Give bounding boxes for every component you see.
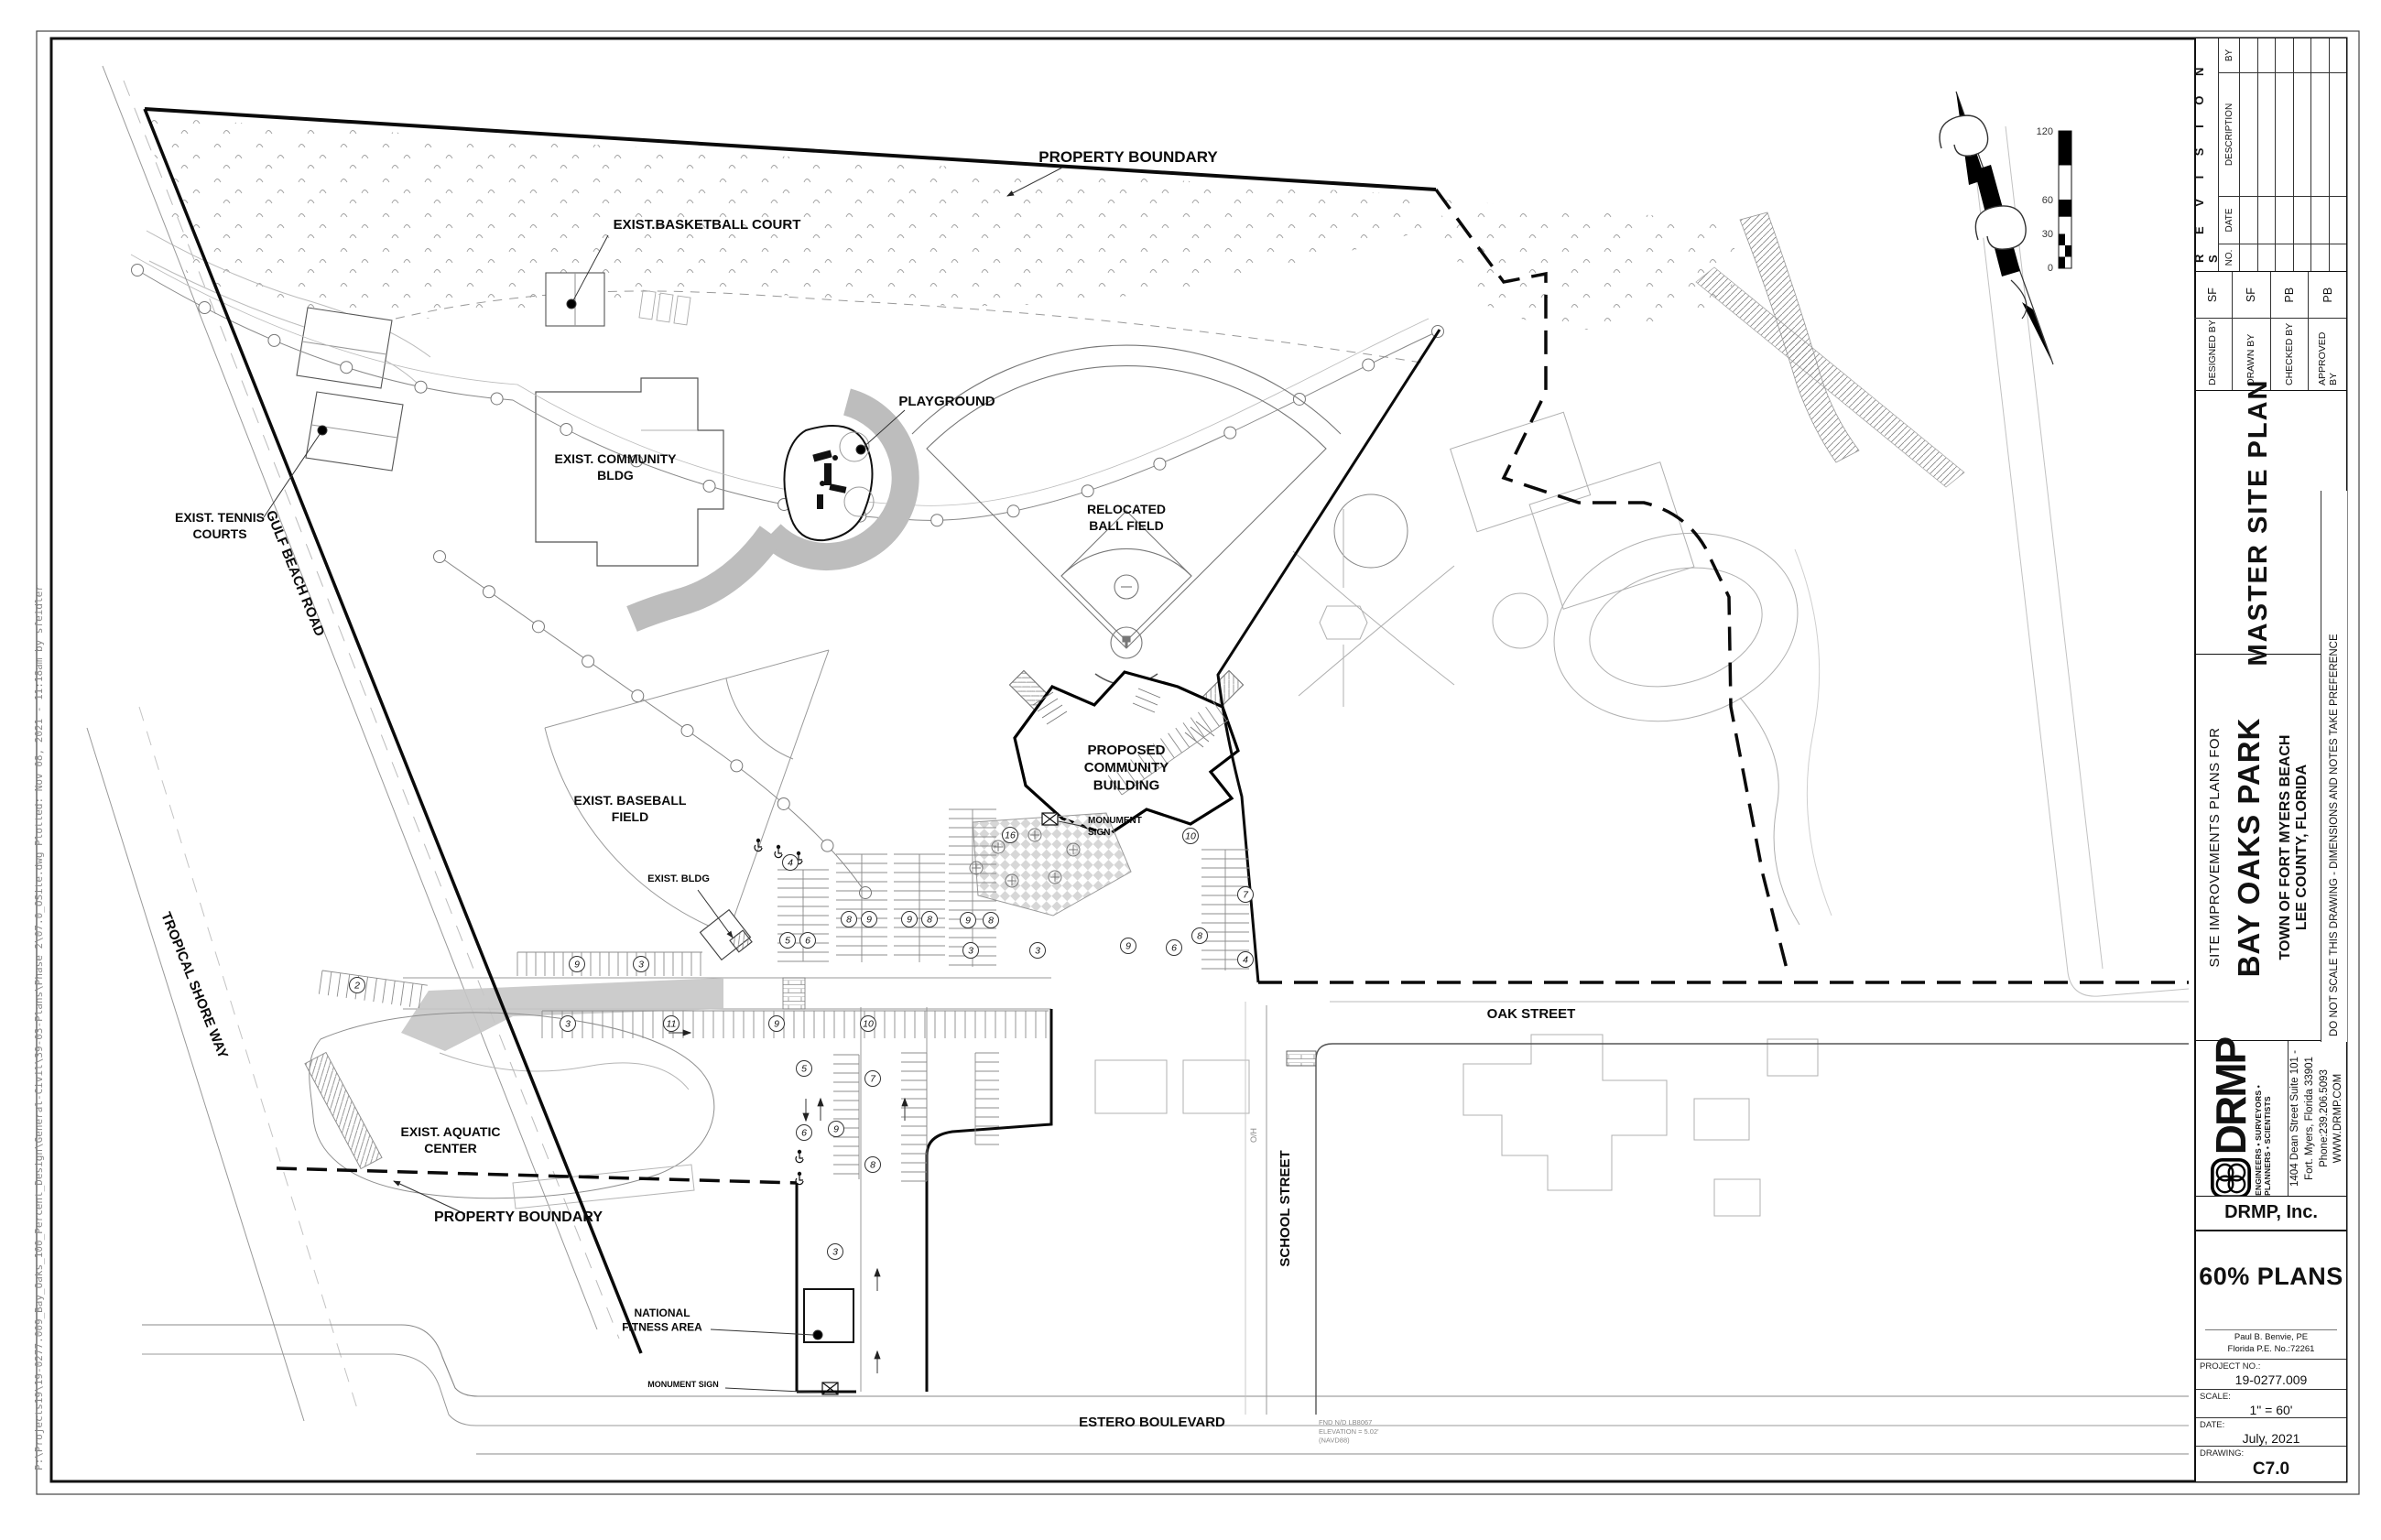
parking-count-badge: 8 [842, 912, 857, 927]
svg-text:3: 3 [565, 1019, 571, 1030]
parking-count-badge: 4 [783, 855, 799, 871]
firm-logo-section: DRMP ENGINEERS • SURVEYORS • PLANNERS • … [2194, 1040, 2346, 1196]
engineer-signature: Paul B. Benvie, PE Florida P.E. No.:7226… [2205, 1329, 2337, 1359]
parking-count-badge: 10 [861, 1016, 876, 1032]
svg-text:8: 8 [1197, 931, 1202, 942]
plan-label-basketball-court: EXIST.BASKETBALL COURT [614, 217, 801, 233]
plan-label-exist-bldg: EXIST. BLDG [647, 873, 710, 884]
no-scale-disclaimer: DO NOT SCALE THIS DRAWING - DIMENSIONS A… [2321, 491, 2347, 1042]
svg-text:4: 4 [788, 858, 793, 869]
parking-count-badge: 9 [769, 1016, 785, 1032]
plan-label-exist-baseball-field: EXIST. BASEBALLFIELD [574, 793, 687, 824]
parking-count-badge: 8 [865, 1157, 881, 1173]
parking-count-badge: 5 [797, 1061, 812, 1077]
exist-baseball-field-shape [545, 650, 829, 934]
svg-text:8: 8 [988, 916, 994, 927]
plan-label-tropical-shore-way: TROPICAL SHORE WAY [158, 910, 231, 1061]
svg-text:4: 4 [1243, 955, 1248, 966]
revisions-col-description: DESCRIPTION [2219, 72, 2239, 196]
revisions-col-by: BY [2219, 38, 2239, 72]
parking-count-badge: 4 [1238, 952, 1254, 968]
plan-label-relocated-ball-field: RELOCATEDBALL FIELD [1087, 502, 1166, 533]
plot-stamp: P:\Projects19\19-0277.009_Bay_Oaks_100_P… [33, 42, 49, 1470]
svg-text:5: 5 [801, 1064, 807, 1075]
scale-bar-tick: 30 [2042, 229, 2053, 240]
project-name: BAY OAKS PARK [2232, 718, 2267, 978]
revisions-col-no: NO. [2219, 244, 2239, 271]
svg-text:6: 6 [801, 1128, 807, 1139]
parking-count-badge: 7 [865, 1071, 881, 1087]
parking-count-badge: 16 [1003, 828, 1018, 843]
plan-label-property-boundary-bottom: PROPERTY BOUNDARY [434, 1209, 603, 1225]
parking-count-badge: 5 [780, 933, 796, 949]
sheet-title: MASTER SITE PLAN [2244, 379, 2274, 667]
status-label: 60% PLANS [2199, 1263, 2343, 1291]
site-plan-canvas: 12060300 PROPERTY BOUNDARYEXIST.BASKETBA… [0, 0, 2381, 1540]
firm-tagline: ENGINEERS • SURVEYORS • PLANNERS • SCIEN… [2254, 1041, 2272, 1196]
revisions-col-date: DATE [2219, 196, 2239, 244]
parking-count-badge: 3 [560, 1016, 576, 1032]
plan-label-playground: PLAYGROUND [898, 394, 995, 409]
project-county: LEE COUNTY, FLORIDA [2294, 765, 2310, 930]
parking-count-badge: 8 [922, 912, 938, 927]
svg-text:9: 9 [965, 916, 971, 927]
basketball-court-shape [546, 273, 604, 326]
parking-count-badge: 7 [1238, 887, 1254, 903]
firm-name: DRMP, Inc. [2196, 1196, 2346, 1231]
parking-count-badge: 11 [664, 1016, 680, 1032]
svg-text:6: 6 [1171, 943, 1177, 954]
parking-count-badge: 10 [1183, 829, 1199, 844]
parking-count-badge: 6 [1167, 940, 1182, 956]
svg-text:3: 3 [638, 960, 644, 971]
parking-count-badge: 3 [1030, 943, 1046, 959]
revisions-section: R E V I S I O N S NO.DATEDESCRIPTIONBY [2194, 38, 2346, 271]
crosswalk-school [1287, 1051, 1316, 1066]
project-town: TOWN OF FORT MYERS BEACH [2278, 735, 2294, 960]
exist-bldg-shape [701, 910, 752, 960]
fitness-area-shape [804, 1289, 853, 1342]
status-section: 60% PLANS Paul B. Benvie, PE Florida P.E… [2196, 1231, 2346, 1360]
plan-label-national-fitness-area: NATIONALFITNESS AREA [622, 1307, 702, 1333]
staff-row: DESIGNED BYSF [2194, 272, 2233, 390]
plan-label-estero-boulevard: ESTERO BOULEVARD [1079, 1415, 1225, 1430]
crosswalk-brick [783, 978, 805, 1009]
engineer-name: Paul B. Benvie, PE [2205, 1332, 2337, 1343]
engineer-license: Florida P.E. No.:72261 [2205, 1344, 2337, 1355]
title-block-rotated: DRMP ENGINEERS • SURVEYORS • PLANNERS • … [2194, 38, 2346, 1196]
field-scale: SCALE: 1" = 60' [2196, 1390, 2346, 1418]
svg-text:3: 3 [1035, 946, 1040, 957]
svg-text:3: 3 [832, 1247, 838, 1258]
svg-text:2: 2 [353, 981, 360, 992]
plan-label-property-boundary-top: PROPERTY BOUNDARY [1038, 148, 1218, 166]
plan-smalltext-survey-note: FND N/D LB8067ELEVATION = 5.02'(NAVD88) [1319, 1418, 1379, 1445]
firm-address-line2: Phone:239.206.5093 WWW.DRMP.COM [2318, 1041, 2346, 1196]
svg-text:3: 3 [968, 946, 973, 957]
scale-bar-tick: 120 [2037, 126, 2053, 137]
scale-bar: 12060300 [2037, 126, 2071, 274]
staff-row: APPROVED BYPB [2309, 272, 2346, 390]
parking-count-badge: 8 [984, 913, 999, 928]
svg-text:10: 10 [863, 1019, 874, 1030]
parking-count-badge: 6 [800, 933, 816, 949]
scale-bar-tick: 0 [2048, 263, 2053, 274]
svg-text:10: 10 [1185, 831, 1196, 842]
tennis-courts-shape [297, 308, 403, 471]
title-block-bottom: DRMP, Inc. 60% PLANS Paul B. Benvie, PE … [2194, 1196, 2346, 1481]
parking-count-badge: 9 [862, 912, 877, 927]
drmp-logo-word: DRMP [2210, 1038, 2252, 1155]
svg-text:9: 9 [833, 1124, 839, 1135]
revisions-title: R E V I S I O N S [2194, 38, 2219, 271]
firm-address-line1: 1404 Dean Street Suite 101 - Fort. Myers… [2289, 1041, 2317, 1196]
field-project-no: PROJECT NO.: 19-0277.009 [2196, 1360, 2346, 1390]
parking-count-badge: 3 [828, 1244, 843, 1260]
plan-smalltext-oh-marker: O/H [1249, 1128, 1258, 1143]
plan-label-proposed-community-building: PROPOSEDCOMMUNITYBUILDING [1084, 743, 1169, 793]
staff-row: CHECKED BYPB [2271, 272, 2310, 390]
svg-text:6: 6 [805, 936, 810, 947]
parking-count-badge: 3 [634, 957, 649, 972]
parking-count-badge: 9 [570, 957, 585, 972]
plan-label-school-street: SCHOOL STREET [1277, 1150, 1293, 1266]
svg-text:8: 8 [927, 915, 932, 926]
parking-count-badge: 9 [902, 912, 918, 927]
plan-label-aquatic-center: EXIST. AQUATICCENTER [401, 1124, 501, 1155]
shore-revetment-hatch [1740, 212, 1859, 462]
parking-count-badge: 2 [350, 978, 365, 993]
plan-label-tennis-courts: EXIST. TENNISCOURTS [175, 510, 265, 541]
svg-text:9: 9 [1125, 941, 1131, 952]
parking-count-badge: 9 [829, 1122, 844, 1137]
plan-sheet: 12060300 PROPERTY BOUNDARYEXIST.BASKETBA… [0, 0, 2381, 1540]
dune-stipple-area [148, 117, 1736, 330]
svg-text:9: 9 [907, 915, 912, 926]
svg-text:8: 8 [870, 1160, 875, 1171]
svg-text:9: 9 [866, 915, 872, 926]
project-for-line: SITE IMPROVEMENTS PLANS FOR [2207, 728, 2223, 968]
parking-count-badge: 9 [961, 913, 976, 928]
field-drawing: DRAWING: C7.0 [2196, 1447, 2346, 1481]
svg-text:9: 9 [574, 960, 580, 971]
svg-text:16: 16 [1005, 830, 1016, 841]
parking-count-badge: 6 [797, 1125, 812, 1141]
plan-label-oak-street: OAK STREET [1487, 1006, 1576, 1022]
svg-text:11: 11 [667, 1019, 677, 1030]
plan-label-monument-sign-estero: MONUMENT SIGN [647, 1380, 719, 1389]
field-date: DATE: July, 2021 [2196, 1418, 2346, 1447]
svg-text:8: 8 [846, 915, 852, 926]
staff-row: DRAWN BYSF [2233, 272, 2271, 390]
staff-section: DESIGNED BYSFDRAWN BYSFCHECKED BYPBAPPRO… [2194, 271, 2346, 390]
parking-count-badge: 8 [1192, 928, 1208, 944]
svg-text:9: 9 [774, 1019, 779, 1030]
scale-bar-tick: 60 [2042, 195, 2053, 206]
parking-count-badge: 9 [1121, 938, 1136, 954]
drmp-logo-icon [2211, 1158, 2251, 1198]
parking-count-badge: 3 [963, 943, 979, 959]
svg-text:5: 5 [785, 936, 790, 947]
